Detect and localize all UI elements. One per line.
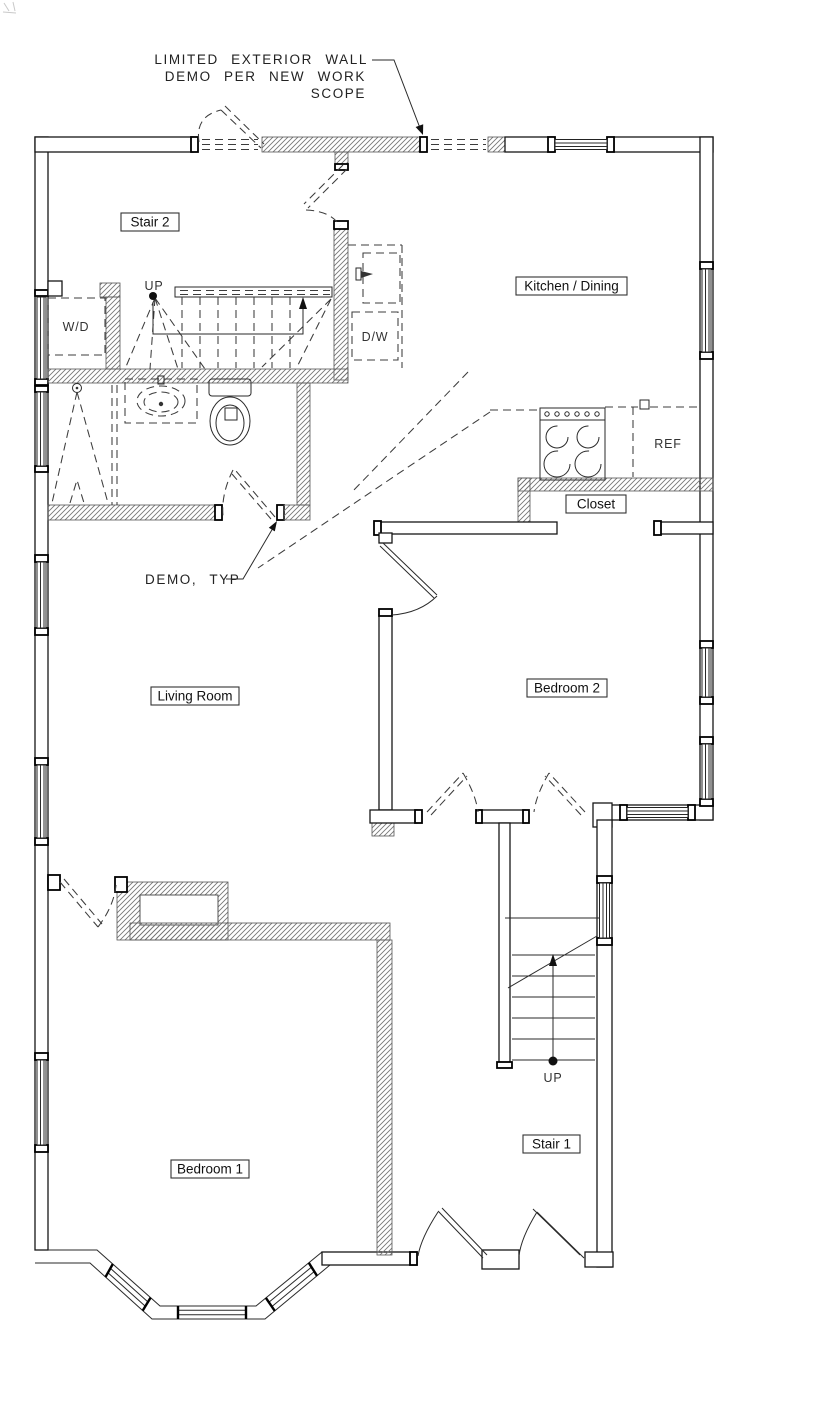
bathroom-fixtures: [52, 376, 251, 505]
room-label-living-room: Living Room: [151, 687, 239, 705]
demo-typ-arrowhead: [269, 521, 277, 531]
demo-diagonal-2: [352, 372, 468, 492]
kitchen-sink-demo: [356, 253, 400, 303]
room-label-bedroom2: Bedroom 2: [527, 679, 607, 697]
window: [35, 290, 48, 385]
window: [700, 641, 713, 704]
room-label-stair1: Stair 1: [523, 1135, 580, 1153]
room-label-kitchen-dining-text: Kitchen / Dining: [524, 279, 619, 294]
demo-partition-dashed: [112, 385, 117, 505]
room-label-kitchen-dining: Kitchen / Dining: [516, 277, 627, 295]
stove: [540, 408, 605, 480]
refrigerator-label: REF: [654, 437, 681, 451]
room-label-closet-text: Closet: [577, 497, 616, 512]
floor-plan-page: LIMITED EXTERIOR WALL DEMO PER NEW WORK …: [0, 0, 819, 1405]
shower: [52, 384, 108, 504]
window: [620, 805, 695, 820]
washer-dryer-label: W/D: [63, 320, 90, 334]
stair-2: [125, 287, 332, 369]
washer-dryer-box: W/D: [48, 298, 105, 355]
demo-door-bathroom: [223, 470, 275, 519]
demo-door-bedroom1: [60, 879, 116, 927]
window: [700, 737, 713, 806]
exterior-wall-note-line1: LIMITED EXTERIOR WALL: [154, 52, 368, 67]
stair-1: [508, 936, 597, 1066]
dishwasher-label: D/W: [362, 330, 389, 344]
room-label-stair1-text: Stair 1: [532, 1137, 571, 1152]
floor-plan-drawing: LIMITED EXTERIOR WALL DEMO PER NEW WORK …: [0, 0, 819, 1405]
stair2-up-arrowhead: [299, 297, 307, 309]
kitchen-fixtures: [258, 245, 700, 568]
demo-diagonal-1: [258, 412, 490, 568]
room-label-stair2: Stair 2: [121, 213, 179, 231]
note-leader-arrowhead: [416, 124, 424, 135]
window: [35, 1053, 48, 1152]
window: [597, 876, 612, 945]
demo-door-top-left: [198, 106, 264, 148]
exterior-wall-note-line2: DEMO PER NEW WORK: [165, 69, 366, 84]
stair2-up-label: UP: [145, 279, 164, 293]
room-label-stair2-text: Stair 2: [130, 215, 169, 230]
toilet: [209, 379, 251, 445]
note-leader-line: [372, 60, 420, 128]
window: [548, 137, 614, 152]
room-label-bedroom1: Bedroom 1: [171, 1160, 249, 1178]
kitchenette-demo-outline: [348, 245, 402, 368]
doors: [60, 106, 585, 1258]
door-entry-right: [519, 1209, 584, 1258]
window: [700, 262, 713, 359]
demo-door-kitchen: [304, 165, 347, 226]
bay-window: [35, 1250, 417, 1319]
door-entry-left: [418, 1208, 487, 1258]
exterior-walls: [35, 137, 713, 1267]
room-label-bedroom1-text: Bedroom 1: [177, 1162, 243, 1177]
room-label-closet: Closet: [566, 495, 626, 513]
counter-corner-mark: [640, 400, 649, 409]
stair2-up-start-dot: [149, 292, 157, 300]
demo-door-bedroom2-right: [534, 773, 585, 815]
door-bedroom2-entry: [380, 543, 437, 615]
stair1-up-label: UP: [544, 1071, 563, 1085]
demo-door-bedroom2-left: [427, 773, 478, 815]
scan-artifact: [3, 2, 16, 13]
stair1-up-start-dot: [549, 1057, 558, 1066]
window: [35, 386, 48, 472]
room-label-bedroom2-text: Bedroom 2: [534, 681, 600, 696]
room-label-living-room-text: Living Room: [157, 689, 232, 704]
window: [35, 555, 48, 635]
exterior-wall-note-line3: SCOPE: [311, 86, 366, 101]
window: [35, 758, 48, 845]
